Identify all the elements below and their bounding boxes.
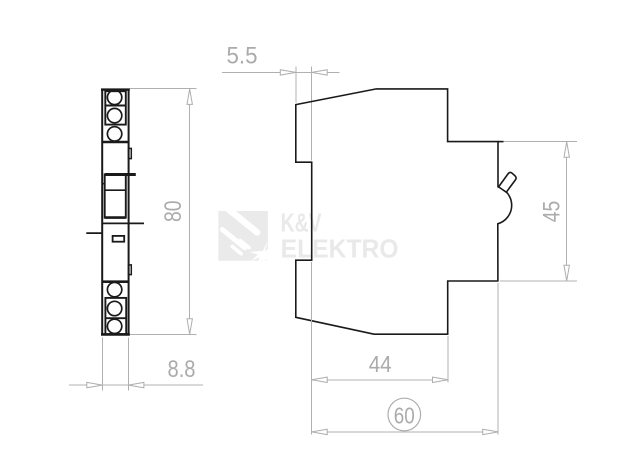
svg-text:60: 60 <box>394 402 415 428</box>
svg-text:ELEKTRO: ELEKTRO <box>281 234 399 264</box>
svg-text:45: 45 <box>539 201 566 223</box>
svg-text:5.5: 5.5 <box>227 43 258 70</box>
svg-text:80: 80 <box>160 200 187 222</box>
svg-text:44: 44 <box>369 351 392 377</box>
svg-text:8.8: 8.8 <box>168 356 196 383</box>
